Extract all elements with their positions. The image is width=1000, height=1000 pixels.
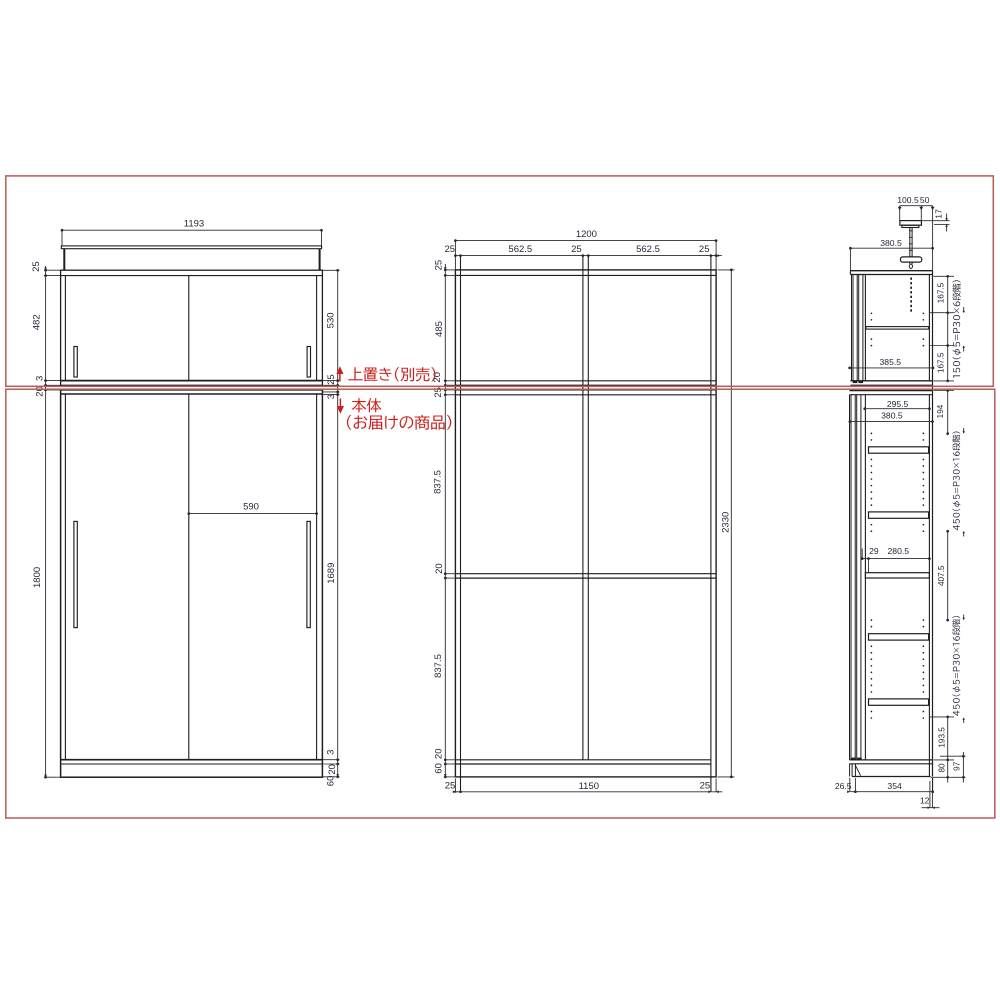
svg-text:26.5: 26.5	[835, 781, 852, 791]
svg-text:12: 12	[920, 796, 930, 806]
svg-text:485: 485	[434, 321, 445, 337]
svg-text:25: 25	[699, 244, 710, 255]
svg-text:2330: 2330	[721, 512, 732, 533]
svg-text:295.5: 295.5	[887, 399, 909, 409]
svg-text:25: 25	[571, 244, 582, 255]
svg-text:3: 3	[326, 750, 337, 755]
svg-text:530: 530	[325, 312, 336, 328]
svg-text:25: 25	[31, 261, 42, 272]
svg-text:562.5: 562.5	[636, 244, 660, 255]
svg-text:25: 25	[700, 781, 711, 792]
svg-text:280.5: 280.5	[888, 546, 910, 556]
svg-text:80: 80	[937, 763, 946, 773]
svg-text:60: 60	[433, 763, 444, 774]
svg-text:167.5: 167.5	[936, 282, 945, 303]
svg-text:29: 29	[869, 546, 879, 556]
svg-text:837.5: 837.5	[433, 470, 444, 494]
svg-text:1150: 1150	[579, 781, 599, 792]
svg-text:1193: 1193	[184, 219, 204, 230]
svg-text:20: 20	[434, 749, 445, 760]
svg-text:25: 25	[445, 244, 456, 255]
svg-text:1689: 1689	[326, 563, 337, 584]
svg-text:3: 3	[326, 394, 337, 399]
svg-text:17: 17	[934, 209, 944, 219]
svg-text:380.5: 380.5	[880, 238, 902, 248]
svg-text:20: 20	[327, 764, 338, 775]
svg-text:25: 25	[445, 781, 456, 792]
svg-text:97: 97	[952, 761, 961, 771]
svg-text:3: 3	[35, 376, 46, 381]
svg-text:100.5: 100.5	[897, 195, 919, 205]
svg-text:380.5: 380.5	[881, 410, 903, 420]
svg-text:60: 60	[326, 776, 337, 787]
svg-text:354: 354	[887, 781, 902, 791]
svg-text:385.5: 385.5	[880, 357, 902, 367]
svg-text:482: 482	[32, 314, 43, 330]
svg-text:837.5: 837.5	[433, 654, 444, 678]
svg-text:167.5: 167.5	[936, 352, 945, 373]
svg-text:193.5: 193.5	[937, 727, 946, 748]
svg-text:1200: 1200	[576, 229, 597, 240]
svg-text:194: 194	[936, 404, 945, 418]
svg-text:407.5: 407.5	[937, 565, 946, 586]
svg-text:25: 25	[433, 260, 444, 271]
svg-text:562.5: 562.5	[508, 244, 532, 255]
svg-text:590: 590	[243, 502, 259, 513]
svg-text:1800: 1800	[32, 567, 43, 588]
svg-text:20: 20	[34, 386, 45, 397]
svg-text:20: 20	[434, 563, 445, 574]
svg-text:25: 25	[326, 374, 337, 385]
svg-text:50: 50	[920, 195, 930, 205]
